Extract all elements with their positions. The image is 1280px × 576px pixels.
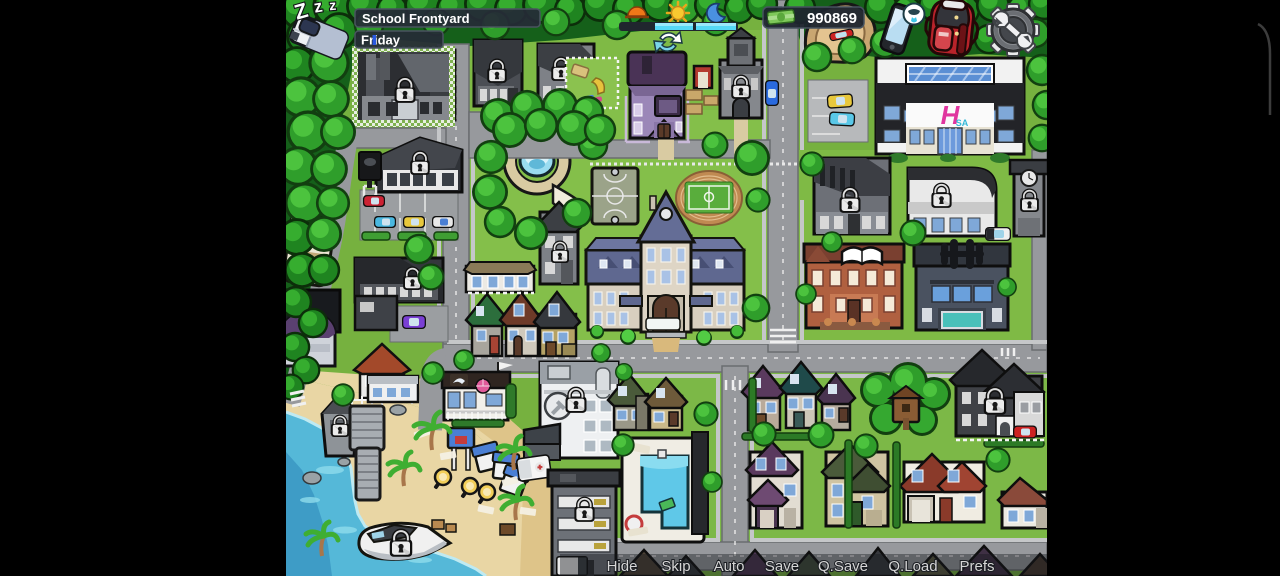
- svg-text:Friday: Friday: [361, 33, 401, 48]
- svg-text:Auto: Auto: [714, 558, 745, 575]
- svg-text:Q.Save: Q.Save: [818, 558, 868, 575]
- svg-text:Skip: Skip: [661, 558, 690, 575]
- svg-text:School Frontyard: School Frontyard: [362, 11, 470, 26]
- svg-text:z: z: [329, 0, 337, 13]
- svg-text:990869: 990869: [807, 10, 857, 27]
- svg-text:Q.Load: Q.Load: [888, 558, 937, 575]
- svg-text:Hide: Hide: [607, 558, 638, 575]
- svg-text:SA: SA: [956, 118, 969, 128]
- svg-text:Save: Save: [765, 558, 799, 575]
- svg-text:Prefs: Prefs: [959, 558, 994, 575]
